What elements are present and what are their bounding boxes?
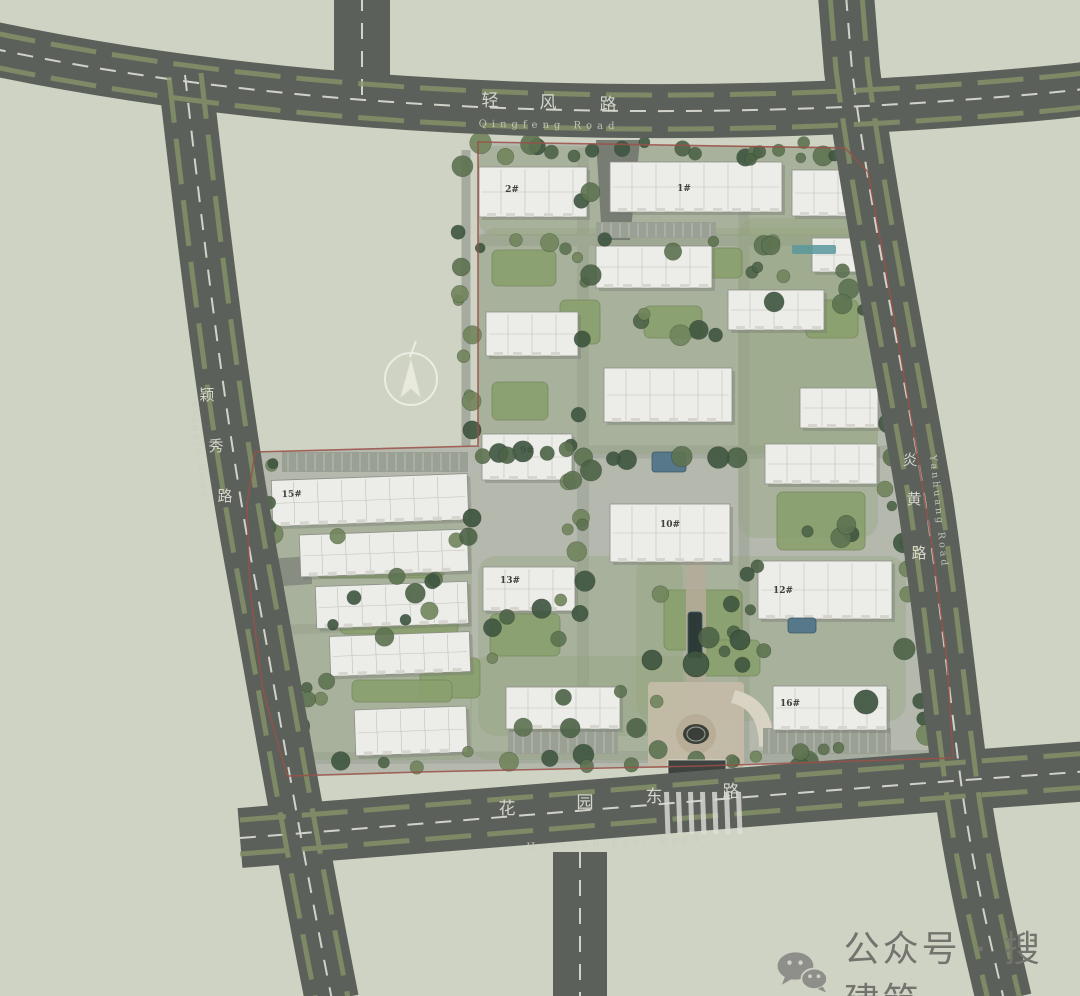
balcony bbox=[650, 418, 659, 422]
tree bbox=[375, 628, 394, 647]
balcony bbox=[736, 326, 745, 330]
balcony bbox=[363, 623, 372, 627]
building-number-label: 2# bbox=[505, 185, 519, 195]
balcony bbox=[458, 619, 467, 623]
tree bbox=[708, 236, 719, 247]
balcony bbox=[552, 725, 561, 729]
tree bbox=[378, 757, 389, 768]
balcony bbox=[434, 669, 443, 673]
tree bbox=[499, 752, 518, 771]
balcony bbox=[300, 521, 309, 525]
yanhuang-road-cn-char: 炎 bbox=[902, 451, 917, 469]
balcony bbox=[453, 668, 462, 672]
tree bbox=[638, 308, 650, 320]
balcony bbox=[395, 518, 404, 522]
tree bbox=[671, 446, 692, 467]
tree bbox=[521, 134, 542, 155]
tree bbox=[400, 614, 411, 625]
huayuan-road-cn-char: 东 bbox=[646, 787, 663, 807]
balcony bbox=[509, 476, 518, 480]
balcony bbox=[433, 517, 442, 521]
tree bbox=[544, 145, 558, 159]
balcony bbox=[344, 623, 353, 627]
balcony bbox=[656, 558, 665, 562]
tree bbox=[745, 605, 756, 616]
tree bbox=[581, 183, 600, 202]
building: 10# bbox=[610, 504, 733, 565]
balcony bbox=[631, 418, 640, 422]
balcony bbox=[675, 558, 684, 562]
balcony bbox=[792, 480, 801, 484]
balcony bbox=[688, 418, 697, 422]
balcony bbox=[773, 480, 782, 484]
balcony bbox=[547, 476, 556, 480]
balcony bbox=[415, 669, 424, 673]
yingxiu-road-cn-char: 秀 bbox=[208, 437, 223, 455]
tree bbox=[698, 627, 719, 648]
balcony bbox=[842, 615, 851, 619]
building-number-label: 13# bbox=[500, 576, 520, 586]
balcony bbox=[880, 615, 889, 619]
tree bbox=[598, 233, 612, 247]
tree bbox=[483, 619, 501, 637]
lawn-patch bbox=[492, 250, 556, 286]
specimen-tree bbox=[683, 651, 709, 677]
tree bbox=[475, 449, 490, 464]
tree bbox=[580, 460, 601, 481]
tree bbox=[837, 515, 856, 534]
tree bbox=[689, 147, 702, 160]
balcony bbox=[694, 558, 703, 562]
balcony bbox=[528, 476, 537, 480]
balcony bbox=[377, 671, 386, 675]
tree bbox=[649, 740, 667, 758]
qingfeng-road-cn-char: 风 bbox=[540, 93, 557, 113]
specimen-tree bbox=[730, 630, 750, 650]
balcony bbox=[357, 519, 366, 523]
watermark: 公众号 · 搜建筑 bbox=[775, 920, 1080, 996]
tree bbox=[707, 447, 729, 469]
building bbox=[596, 246, 715, 291]
tree bbox=[792, 744, 809, 761]
parking-strip bbox=[282, 452, 468, 472]
balcony bbox=[414, 517, 423, 521]
balcony bbox=[442, 568, 451, 572]
tree bbox=[559, 442, 574, 457]
qingfeng-road-cn-char: 路 bbox=[600, 95, 617, 115]
balcony bbox=[827, 424, 836, 428]
tree bbox=[405, 583, 425, 603]
tree bbox=[451, 225, 465, 239]
specimen-tree bbox=[642, 650, 662, 670]
balcony bbox=[781, 726, 790, 730]
tree bbox=[562, 524, 573, 535]
tree bbox=[563, 471, 581, 489]
tree bbox=[627, 718, 647, 738]
balcony bbox=[513, 352, 522, 356]
tree bbox=[577, 519, 589, 531]
building: 1# bbox=[610, 162, 785, 215]
balcony bbox=[766, 615, 775, 619]
building bbox=[329, 631, 473, 679]
tree bbox=[750, 751, 762, 763]
balcony bbox=[808, 424, 817, 428]
tree bbox=[555, 689, 571, 705]
balcony bbox=[800, 726, 809, 730]
tree bbox=[639, 137, 650, 148]
building bbox=[315, 581, 471, 631]
tree bbox=[735, 657, 750, 672]
balcony bbox=[849, 480, 858, 484]
tree bbox=[314, 692, 327, 705]
balcony bbox=[732, 208, 741, 212]
tree bbox=[585, 144, 599, 158]
tree bbox=[571, 407, 586, 422]
building: 2# bbox=[479, 167, 590, 220]
tree bbox=[512, 441, 533, 462]
balcony bbox=[376, 518, 385, 522]
balcony bbox=[675, 208, 684, 212]
balcony bbox=[366, 570, 375, 574]
tree bbox=[877, 481, 893, 497]
building-number-label: 12# bbox=[773, 586, 793, 596]
balcony bbox=[281, 522, 290, 526]
balcony bbox=[755, 326, 764, 330]
yanhuang-road-cn-char: 黄 bbox=[906, 490, 921, 508]
tree bbox=[389, 568, 406, 585]
tree bbox=[670, 325, 691, 346]
building bbox=[765, 444, 880, 487]
tree bbox=[452, 258, 470, 276]
specimen-tree bbox=[854, 690, 878, 714]
yanhuang-road-cn-char: 路 bbox=[911, 544, 926, 562]
tree bbox=[560, 718, 580, 738]
balcony bbox=[661, 284, 670, 288]
balcony bbox=[819, 726, 828, 730]
balcony bbox=[487, 213, 496, 217]
tree bbox=[796, 153, 806, 163]
balcony bbox=[421, 749, 430, 753]
tree bbox=[457, 350, 470, 363]
tree bbox=[893, 638, 915, 660]
tree bbox=[606, 452, 620, 466]
tree bbox=[777, 270, 790, 283]
tree bbox=[462, 746, 473, 757]
balcony bbox=[830, 480, 839, 484]
tree bbox=[470, 132, 492, 154]
tree bbox=[752, 262, 763, 273]
balcony bbox=[364, 751, 373, 755]
balcony bbox=[439, 620, 448, 624]
building-number-label: 1# bbox=[677, 184, 691, 194]
balcony bbox=[347, 571, 356, 575]
balcony bbox=[820, 268, 829, 272]
tree bbox=[475, 243, 485, 253]
balcony bbox=[707, 418, 716, 422]
tree bbox=[574, 331, 590, 347]
tree bbox=[567, 542, 587, 562]
balcony bbox=[812, 326, 821, 330]
building bbox=[604, 368, 735, 425]
balcony bbox=[609, 725, 618, 729]
tree bbox=[331, 752, 350, 771]
balcony bbox=[452, 516, 461, 520]
balcony bbox=[770, 208, 779, 212]
balcony bbox=[382, 622, 391, 626]
qingfeng-road-cn-char: 轻 bbox=[482, 91, 499, 111]
balcony bbox=[532, 352, 541, 356]
tree bbox=[572, 252, 583, 263]
tree bbox=[451, 285, 468, 302]
balcony bbox=[440, 749, 449, 753]
tree bbox=[330, 528, 346, 544]
balcony bbox=[800, 212, 809, 216]
balcony bbox=[680, 284, 689, 288]
tree bbox=[421, 602, 439, 620]
tree bbox=[499, 447, 516, 464]
balcony bbox=[857, 726, 866, 730]
yingxiu-road-cn-char: 颖 bbox=[199, 386, 214, 404]
balcony bbox=[811, 480, 820, 484]
tree bbox=[560, 243, 572, 255]
wechat-icon bbox=[775, 947, 830, 996]
balcony bbox=[618, 558, 627, 562]
lawn-patch bbox=[352, 680, 452, 702]
balcony bbox=[876, 726, 885, 730]
building bbox=[354, 706, 471, 759]
balcony bbox=[838, 726, 847, 730]
balcony bbox=[338, 520, 347, 524]
tree bbox=[652, 586, 669, 603]
balcony bbox=[819, 212, 828, 216]
tree bbox=[614, 141, 630, 157]
specimen-tree bbox=[463, 509, 481, 527]
balcony bbox=[774, 326, 783, 330]
building-number-label: 16# bbox=[780, 699, 800, 709]
tree bbox=[689, 320, 708, 339]
tree bbox=[818, 744, 829, 755]
balcony bbox=[309, 572, 318, 576]
building: 12# bbox=[758, 561, 895, 622]
master-plan-svg: 1#2#9#10#12#13#15#16# bbox=[0, 0, 1080, 996]
tree bbox=[772, 144, 784, 156]
yingxiu-road-cn-char: 路 bbox=[217, 487, 232, 505]
tree bbox=[347, 591, 361, 605]
balcony bbox=[396, 670, 405, 674]
tree bbox=[452, 156, 473, 177]
balcony bbox=[699, 284, 708, 288]
building bbox=[800, 388, 881, 431]
balcony bbox=[494, 352, 503, 356]
balcony bbox=[823, 615, 832, 619]
tree bbox=[675, 141, 691, 157]
tree bbox=[509, 234, 522, 247]
lawn-patch bbox=[492, 382, 548, 420]
tree bbox=[802, 526, 814, 538]
tree bbox=[540, 446, 554, 460]
teal-annotation bbox=[792, 245, 836, 254]
tree bbox=[624, 758, 639, 773]
balcony bbox=[642, 284, 651, 288]
tree bbox=[833, 742, 844, 753]
balcony bbox=[339, 672, 348, 676]
tree bbox=[499, 609, 514, 624]
balcony bbox=[544, 213, 553, 217]
balcony bbox=[656, 208, 665, 212]
balcony bbox=[404, 569, 413, 573]
balcony bbox=[751, 208, 760, 212]
tree bbox=[268, 458, 278, 468]
tree bbox=[318, 673, 334, 689]
huayuan-road-cn-char: 花 bbox=[499, 799, 516, 819]
tree bbox=[572, 605, 588, 621]
balcony bbox=[533, 725, 542, 729]
balcony bbox=[328, 572, 337, 576]
tree bbox=[761, 236, 780, 255]
huayuan-road-cn-char: 园 bbox=[577, 793, 594, 813]
tree bbox=[614, 685, 627, 698]
building bbox=[486, 312, 581, 359]
tree bbox=[740, 567, 754, 581]
balcony bbox=[525, 213, 534, 217]
building: 13# bbox=[483, 567, 578, 614]
watermark-text: 公众号 · 搜建筑 bbox=[844, 920, 1080, 996]
tree bbox=[328, 619, 339, 630]
balcony bbox=[793, 326, 802, 330]
balcony bbox=[637, 208, 646, 212]
balcony bbox=[551, 352, 560, 356]
site-plan-canvas: 1#2#9#10#12#13#15#16# bbox=[0, 0, 1080, 996]
tree bbox=[764, 292, 784, 312]
balcony bbox=[490, 476, 499, 480]
balcony bbox=[358, 671, 367, 675]
balcony bbox=[491, 607, 500, 611]
balcony bbox=[865, 424, 874, 428]
tree bbox=[568, 150, 580, 162]
balcony bbox=[402, 750, 411, 754]
tree bbox=[832, 294, 852, 314]
balcony bbox=[420, 621, 429, 625]
huayuan-road-cn-char: 路 bbox=[723, 782, 740, 802]
balcony bbox=[506, 213, 515, 217]
tree bbox=[514, 718, 532, 736]
tree bbox=[757, 644, 771, 658]
balcony bbox=[563, 213, 572, 217]
tree bbox=[887, 501, 897, 511]
plan-annotations bbox=[792, 245, 836, 254]
balcony bbox=[590, 725, 599, 729]
balcony bbox=[713, 558, 722, 562]
tree bbox=[555, 594, 567, 606]
pool bbox=[788, 618, 816, 633]
balcony bbox=[383, 751, 392, 755]
tree bbox=[460, 528, 478, 546]
building bbox=[299, 529, 471, 580]
tree bbox=[487, 653, 498, 664]
balcony bbox=[618, 208, 627, 212]
balcony bbox=[846, 424, 855, 428]
tree bbox=[664, 243, 681, 260]
tree bbox=[542, 750, 559, 767]
tree bbox=[497, 148, 514, 165]
tree bbox=[650, 695, 663, 708]
balcony bbox=[604, 284, 613, 288]
balcony bbox=[861, 615, 870, 619]
tree bbox=[727, 448, 747, 468]
balcony bbox=[319, 520, 328, 524]
tree bbox=[709, 328, 723, 342]
tree bbox=[540, 233, 558, 251]
balcony bbox=[713, 208, 722, 212]
building-number-label: 15# bbox=[282, 489, 302, 500]
balcony bbox=[637, 558, 646, 562]
building: 15# bbox=[271, 473, 472, 529]
tree bbox=[836, 264, 850, 278]
tree bbox=[719, 646, 730, 657]
balcony bbox=[612, 418, 621, 422]
tree bbox=[425, 574, 440, 589]
balcony bbox=[423, 568, 432, 572]
tree bbox=[532, 599, 552, 619]
tree bbox=[575, 571, 596, 592]
tree bbox=[580, 759, 593, 772]
balcony bbox=[694, 208, 703, 212]
balcony bbox=[623, 284, 632, 288]
balcony bbox=[669, 418, 678, 422]
building-number-label: 10# bbox=[660, 520, 680, 530]
tree bbox=[723, 596, 739, 612]
tree bbox=[551, 631, 567, 647]
tree bbox=[581, 265, 602, 286]
